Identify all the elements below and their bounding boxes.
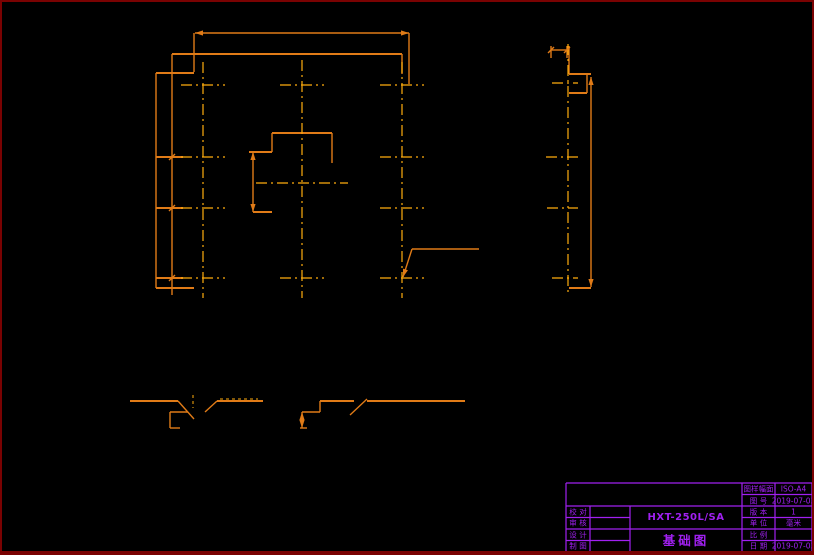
cad-viewport: 图样幅面 ISO-A4 图 号 2019-07-03 校 对 审 核 设 计 制… — [0, 0, 814, 555]
titleblock-number-label: 图 号 — [750, 497, 767, 505]
titleblock-version-label: 版 本 — [750, 508, 767, 516]
dimension-arrow-icon — [299, 420, 304, 428]
dimension-arrow-icon — [299, 412, 304, 420]
titleblock-date-label: 日 期 — [750, 542, 767, 550]
titleblock-model: HXT-250L/SA — [648, 513, 725, 523]
titleblock-role-draft: 制 图 — [569, 542, 586, 550]
titleblock-drawing-title: 基础图 — [663, 534, 710, 547]
dimension-arrow-icon — [250, 204, 255, 212]
titleblock-unit-label: 单 位 — [750, 519, 767, 527]
cad-drawing — [0, 0, 814, 555]
titleblock-sheet-value: ISO-A4 — [781, 485, 807, 493]
outline-segment — [178, 401, 194, 419]
dimension-arrow-icon — [588, 77, 593, 85]
titleblock-role-design: 设 计 — [569, 531, 586, 539]
titleblock-sheet-label: 图样幅面 — [744, 485, 774, 493]
titleblock-scale-label: 比 例 — [750, 531, 767, 539]
titleblock-number-value: 2019-07-03 — [772, 497, 814, 505]
dimension-arrow-icon — [588, 279, 593, 287]
titleblock-version-value: 1 — [791, 508, 796, 516]
outline-segment — [205, 401, 217, 412]
dimension-arrow-icon — [401, 30, 409, 35]
titleblock-role-review: 审 核 — [569, 519, 586, 527]
titleblock-unit-value: 毫米 — [786, 519, 801, 527]
dimension-arrow-icon — [195, 30, 203, 35]
titleblock-date-value: 2019-07-03 — [772, 542, 814, 550]
titleblock-role-check: 校 对 — [569, 508, 586, 516]
dimension-arrow-icon — [250, 152, 255, 160]
